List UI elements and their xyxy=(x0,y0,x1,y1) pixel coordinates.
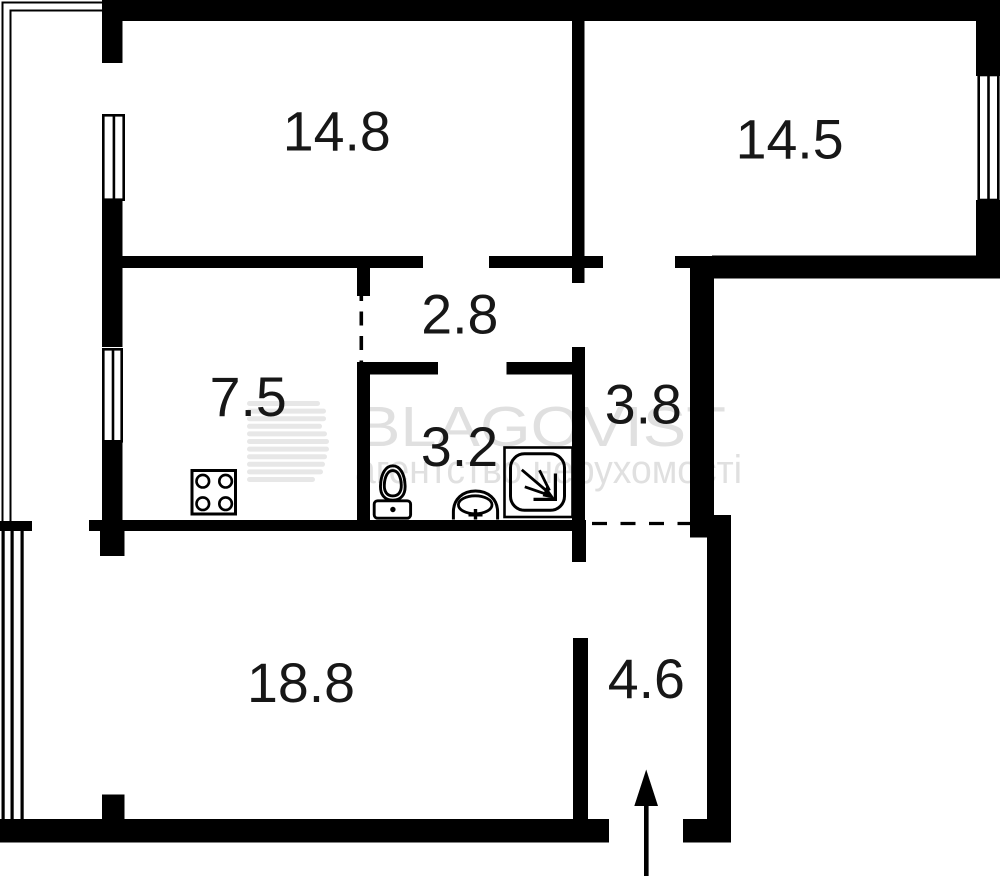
svg-text:18.8: 18.8 xyxy=(247,652,355,714)
svg-text:14.5: 14.5 xyxy=(736,109,844,171)
svg-text:7.5: 7.5 xyxy=(210,366,287,428)
svg-text:4.6: 4.6 xyxy=(608,648,685,710)
svg-text:14.8: 14.8 xyxy=(283,100,391,162)
svg-text:2.8: 2.8 xyxy=(421,283,498,345)
svg-text:3.2: 3.2 xyxy=(421,416,498,478)
svg-text:3.8: 3.8 xyxy=(605,373,682,435)
